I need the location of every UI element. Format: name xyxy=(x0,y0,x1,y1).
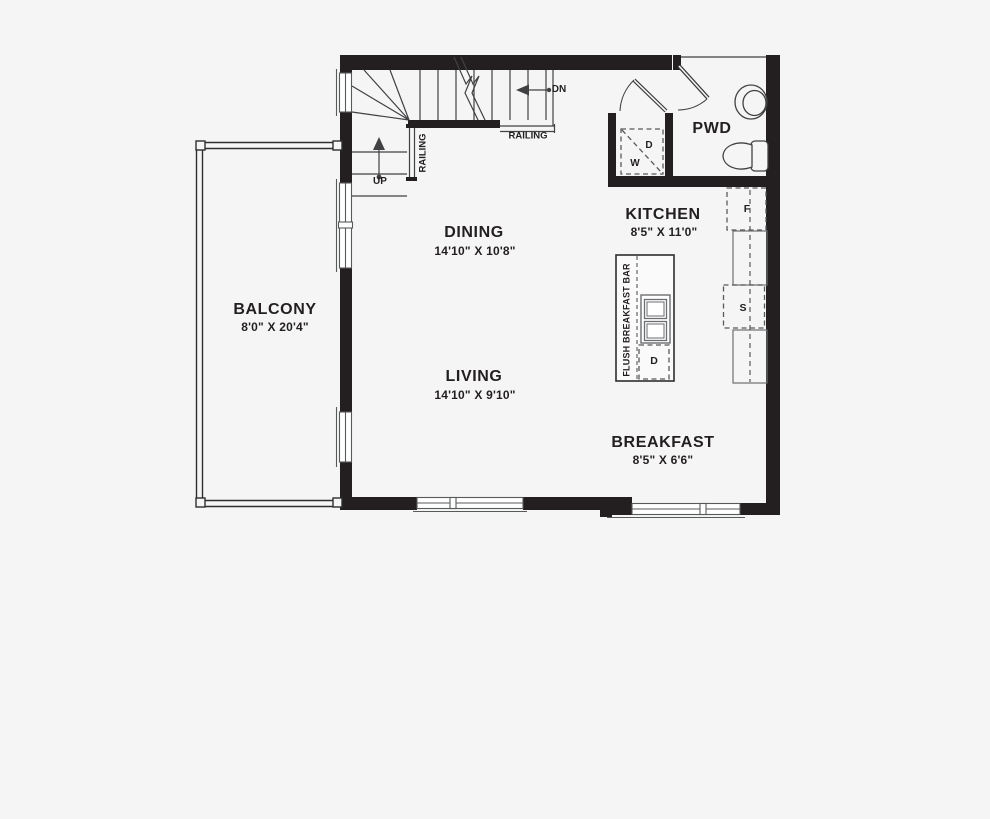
stair-winder xyxy=(364,70,409,120)
room-label-breakfast: BREAKFAST xyxy=(611,435,714,451)
washer-label: W xyxy=(630,159,639,169)
wall-top xyxy=(340,55,672,70)
railing-label-vertical: RAILING xyxy=(418,133,428,172)
up-arrow-head xyxy=(373,137,385,150)
railing-post xyxy=(196,498,205,507)
up-arrow xyxy=(373,137,385,179)
wall-bottom-living xyxy=(340,497,417,510)
room-label-kitchen: KITCHEN xyxy=(625,207,700,223)
floor-plan: BALCONY 8'0" X 20'4" DINING 14'10" X 10'… xyxy=(0,0,990,819)
railing-label-horizontal: RAILING xyxy=(508,131,547,141)
railing-post xyxy=(333,141,342,150)
toilet-bowl xyxy=(723,143,752,169)
washer-dryer-diagonal xyxy=(622,130,662,173)
wall-left-seg xyxy=(340,268,352,412)
room-label-living: LIVING xyxy=(446,369,503,385)
dn-arrow-head xyxy=(516,85,529,96)
stair-winder xyxy=(352,112,409,120)
wall-bottom-breakfast xyxy=(612,503,632,515)
window-mullion xyxy=(700,504,706,515)
room-dims-breakfast: 8'5" X 6'6" xyxy=(633,454,694,466)
fridge-label: F xyxy=(744,204,750,215)
window-mullion xyxy=(450,498,456,509)
sink-label: S xyxy=(739,303,746,314)
wall-left-seg xyxy=(340,462,352,497)
floor-plan-drawing xyxy=(0,0,990,819)
stair-winder xyxy=(390,70,409,120)
window-mullion xyxy=(339,222,353,228)
wall-closet-left xyxy=(608,113,616,176)
room-dims-dining: 14'10" X 10'8" xyxy=(434,245,515,257)
railing-cap xyxy=(406,124,417,128)
entry-door-leaf-core xyxy=(679,66,708,98)
railing-cap xyxy=(406,177,417,181)
wall-right xyxy=(766,55,780,515)
pwd-sink-basin xyxy=(743,91,766,116)
doors xyxy=(620,66,708,111)
toilet-tank xyxy=(751,141,768,171)
wall-pwd-kitchen xyxy=(608,176,780,187)
dn-label: DN xyxy=(552,85,566,95)
flush-breakfast-bar-label: FLUSH BREAKFAST BAR xyxy=(623,263,632,376)
room-label-balcony: BALCONY xyxy=(233,302,316,318)
railing-post xyxy=(333,498,342,507)
wall-stair-bar xyxy=(408,120,500,128)
up-label: UP xyxy=(373,177,387,187)
room-dims-living: 14'10" X 9'10" xyxy=(434,389,515,401)
dishwasher-label: D xyxy=(650,356,658,367)
wall-left-seg xyxy=(340,55,352,73)
closet-door-leaf-core xyxy=(634,80,666,111)
room-dims-kitchen: 8'5" X 11'0" xyxy=(631,226,698,238)
entry-door-swing-arc xyxy=(678,99,707,110)
wall-bottom-breakfast xyxy=(740,503,766,515)
dn-arrow-dot xyxy=(547,88,551,92)
dryer-label: D xyxy=(645,141,652,151)
washer-dryer-closet xyxy=(621,129,663,174)
stair-winder xyxy=(352,86,409,120)
wall-step-stub xyxy=(600,510,612,517)
closet-door-swing-arc xyxy=(620,80,634,111)
railing-post xyxy=(196,141,205,150)
wall-closet-right xyxy=(665,113,673,176)
room-dims-balcony: 8'0" X 20'4" xyxy=(241,321,309,333)
room-label-pwd: PWD xyxy=(692,121,731,137)
room-label-dining: DINING xyxy=(444,225,504,241)
